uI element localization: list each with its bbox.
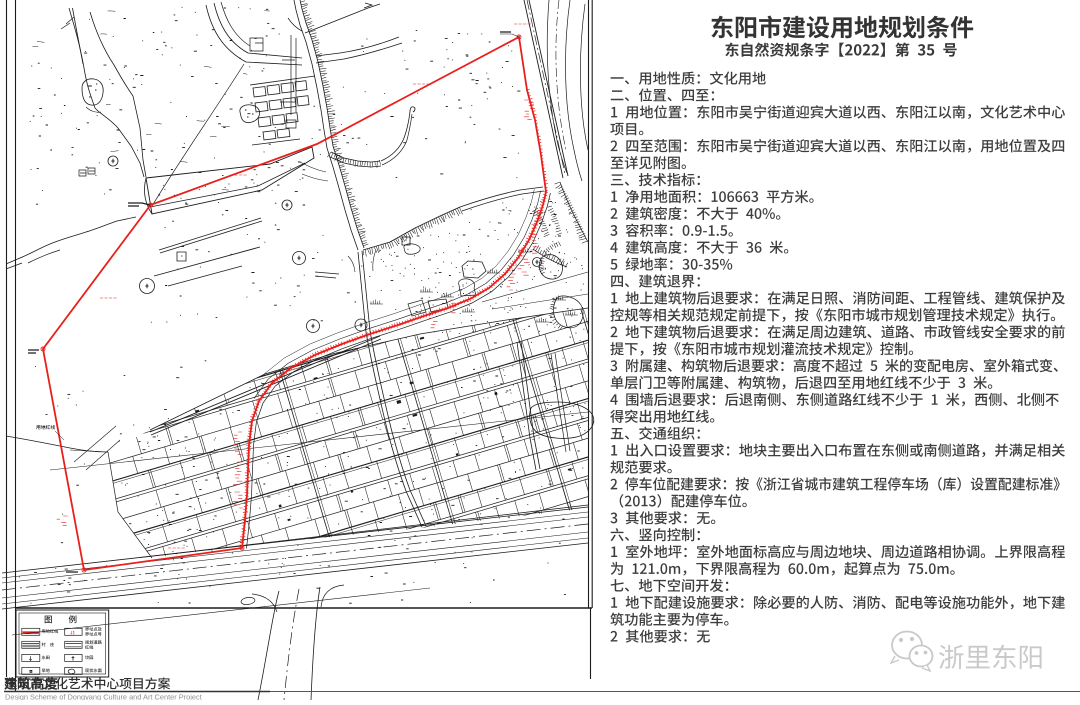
svg-text:Design Scheme of Dongyang Cult: Design Scheme of Dongyang Culture and Ar… bbox=[5, 693, 202, 701]
